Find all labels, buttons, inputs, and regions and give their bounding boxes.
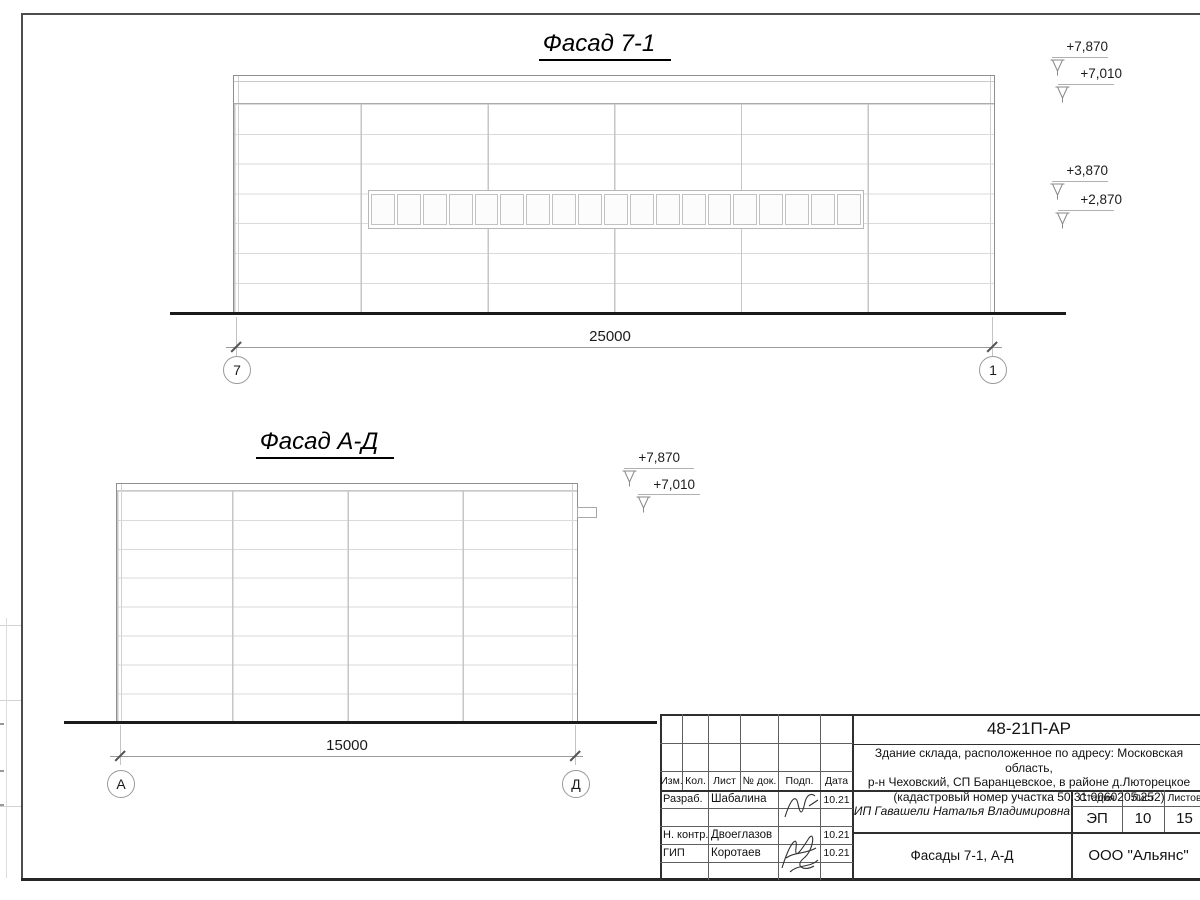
stamp-role: Н. контр.: [663, 829, 708, 841]
facade-7-1-title: Фасад 7-1: [460, 30, 750, 61]
stamp-role: Разраб.: [663, 793, 703, 805]
dimension-value: 15000: [167, 737, 527, 754]
stamp-name: Коротаев: [711, 847, 761, 859]
window-pane: [656, 194, 680, 225]
window-strip: [368, 190, 864, 229]
facade-7-1-title-text: Фасад 7-1: [539, 30, 671, 61]
axis-bubble-1: 1: [979, 356, 1007, 384]
stamp-col-data: Дата: [821, 775, 852, 787]
elevation-mark-icon: [636, 496, 651, 513]
extension-line: [236, 317, 237, 356]
window-pane: [500, 194, 524, 225]
window-pane: [449, 194, 473, 225]
window-pane: [526, 194, 550, 225]
elevation-leader: [638, 494, 700, 495]
window-pane: [682, 194, 706, 225]
stamp-divider: [853, 744, 1200, 745]
elevation-label: +2,870: [1054, 192, 1122, 207]
window-pane: [578, 194, 602, 225]
page: { "facade1": { "title": "Фасад 7-1", "di…: [0, 0, 1200, 900]
binding-stamp-text-fragment: [0, 770, 4, 772]
drawing-sheet: Фасад 7-1 25000 7 1 +7,870 +7,010 +3,870…: [0, 0, 1200, 900]
elevation-label: +3,870: [1040, 163, 1108, 178]
window-pane: [397, 194, 421, 225]
stamp-sheets-value: 15: [1164, 806, 1200, 832]
gutter-outlet: [577, 507, 597, 518]
stamp-divider: [660, 743, 853, 744]
stamp-col-podp: Подп.: [779, 775, 820, 787]
stamp-doc-number: 48-21П-АР: [853, 719, 1200, 739]
stamp-name: Шабалина: [711, 793, 767, 805]
window-pane: [837, 194, 861, 225]
binding-stamp-line: [6, 618, 7, 878]
stamp-sheet-title: Фасады 7-1, А-Д: [853, 832, 1071, 880]
frame-border-top: [21, 13, 1200, 15]
stamp-divider: [660, 771, 853, 772]
elevation-leader: [1052, 57, 1108, 58]
stamp-date: 10.21: [820, 847, 853, 859]
ground-line: [170, 312, 1066, 315]
window-pane: [811, 194, 835, 225]
stamp-sheets-label: Листов: [1164, 792, 1200, 804]
elevation-leader: [1058, 210, 1114, 211]
elevation-label: +7,010: [627, 477, 695, 492]
facade-ad-title: Фасад А-Д: [180, 428, 470, 459]
stamp-name: Двоеглазов: [711, 829, 772, 841]
stamp-border: [660, 714, 1200, 716]
extension-line: [120, 725, 121, 765]
stamp-date: 10.21: [820, 829, 853, 841]
elevation-mark-icon: [1055, 86, 1070, 103]
siding-field: [117, 491, 577, 722]
stamp-client: ИП Гавашели Наталья Владимировна: [853, 790, 1071, 832]
stamp-divider: [660, 862, 853, 863]
axis-bubble-d: Д: [562, 770, 590, 798]
stamp-divider: [660, 790, 853, 792]
window-pane: [708, 194, 732, 225]
elevation-label: +7,870: [1040, 39, 1108, 54]
window-pane: [759, 194, 783, 225]
stamp-col-kol: Кол.: [683, 775, 708, 787]
stamp-divider: [708, 714, 709, 880]
axis-bubble-a: А: [107, 770, 135, 798]
ground-line: [64, 721, 657, 724]
elevation-leader: [1052, 181, 1108, 182]
window-pane: [371, 194, 395, 225]
dimension-line: [110, 756, 583, 757]
binding-stamp-line: [0, 806, 21, 807]
stamp-divider: [660, 826, 853, 827]
facade-ad-title-text: Фасад А-Д: [256, 428, 395, 459]
stamp-sheet-value: 10: [1122, 806, 1164, 832]
window-pane: [604, 194, 628, 225]
stamp-sheet-label: Лист: [1122, 792, 1164, 804]
elevation-label: +7,010: [1054, 66, 1122, 81]
axis-bubble-7: 7: [223, 356, 251, 384]
stamp-desc-line1: Здание склада, расположенное по адресу: …: [853, 746, 1200, 775]
stamp-stage-label: Стадия: [1072, 792, 1122, 804]
elevation-leader: [624, 468, 694, 469]
stamp-divider: [660, 844, 853, 845]
binding-stamp-text-fragment: [0, 804, 4, 806]
parapet-line: [234, 81, 994, 82]
elevation-leader: [1058, 84, 1114, 85]
dimension-line: [226, 347, 1002, 348]
window-pane: [423, 194, 447, 225]
window-pane: [785, 194, 809, 225]
elevation-label: +7,870: [612, 450, 680, 465]
window-pane: [733, 194, 757, 225]
extension-line: [575, 725, 576, 765]
stamp-date: 10.21: [820, 794, 853, 806]
stamp-col-ndok: № док.: [741, 775, 778, 787]
stamp-border: [660, 714, 662, 880]
binding-stamp-text-fragment: [0, 723, 4, 725]
stamp-col-list: Лист: [709, 775, 740, 787]
extension-line: [992, 317, 993, 356]
stamp-desc-line2: р-н Чеховский, СП Баранцевское, в районе…: [853, 775, 1200, 790]
stamp-role: ГИП: [663, 847, 685, 859]
window-pane: [630, 194, 654, 225]
frame-border-left: [21, 13, 23, 881]
dimension-value: 25000: [430, 328, 790, 345]
window-pane: [552, 194, 576, 225]
window-pane: [475, 194, 499, 225]
binding-stamp-line: [0, 700, 21, 701]
signature: [782, 790, 820, 822]
stamp-stage-value: ЭП: [1072, 806, 1122, 832]
elevation-mark-icon: [1055, 212, 1070, 229]
signature: [776, 824, 822, 878]
stamp-organization: ООО "Альянс": [1072, 832, 1200, 880]
stamp-col-izm: Изм.: [660, 775, 683, 787]
stamp-divider: [660, 808, 853, 809]
binding-stamp-line: [0, 625, 21, 626]
